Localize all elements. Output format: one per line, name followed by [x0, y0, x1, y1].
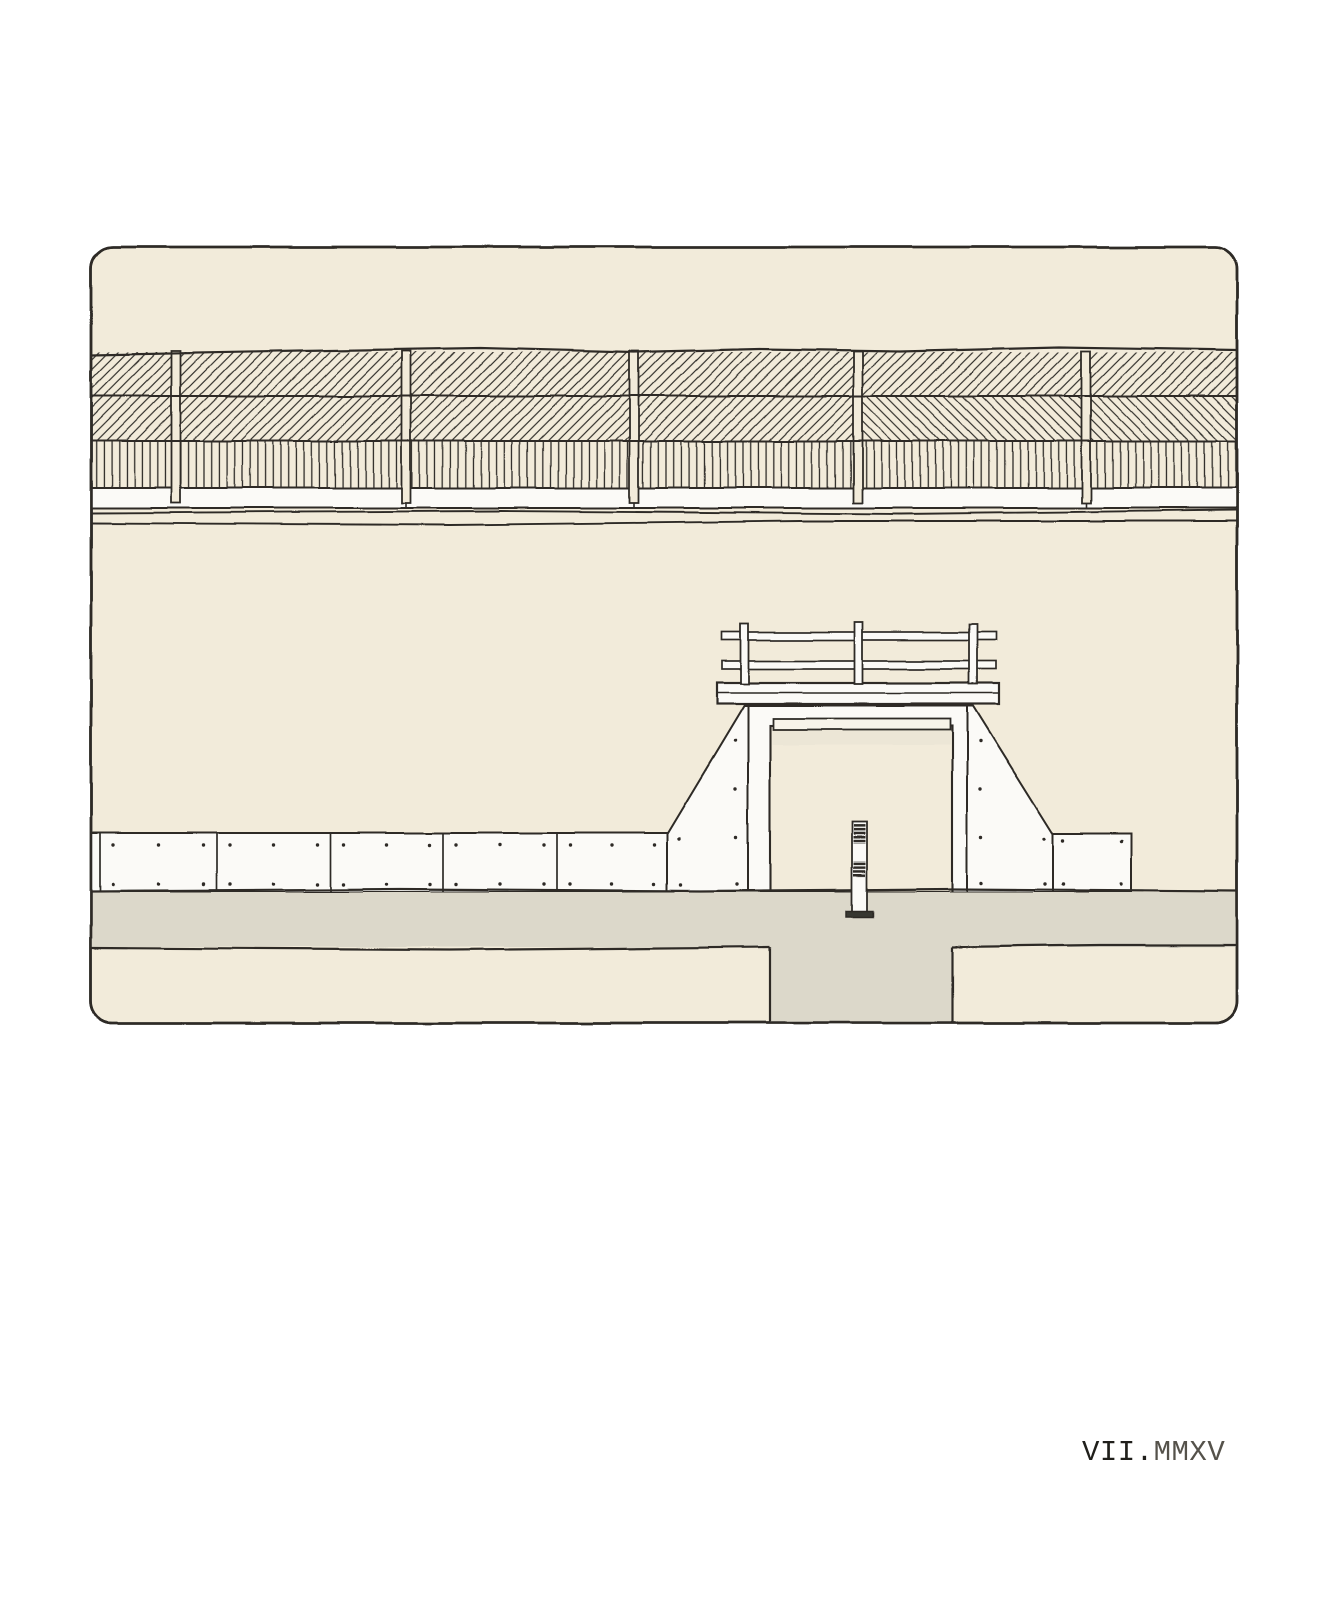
- bolt-dot: [1043, 882, 1046, 885]
- bolt-dot: [498, 843, 501, 846]
- bolt-dot: [652, 843, 655, 846]
- bolt-dot: [568, 882, 571, 885]
- bolt-dot: [568, 843, 571, 846]
- bolt-dot: [1061, 882, 1064, 885]
- bolt-dot: [542, 843, 545, 846]
- bolt-dot: [1042, 837, 1045, 840]
- bolt-dot: [679, 883, 682, 886]
- fence-palings-band: [91, 441, 1237, 488]
- bolt-dot: [272, 843, 275, 846]
- bollard-base: [846, 911, 873, 917]
- bolt-dot: [610, 843, 613, 846]
- bolt-dot: [157, 882, 160, 885]
- bolt-dot: [202, 843, 205, 846]
- illustration-page: VII.MMXV: [0, 0, 1334, 1600]
- bolt-dot: [341, 843, 344, 846]
- underpass-sketch: [0, 0, 1334, 1600]
- bolt-dot: [1119, 882, 1122, 885]
- retaining-wall-left: [91, 833, 667, 892]
- bollard-stripe-top: [854, 824, 866, 844]
- bolt-dot: [157, 843, 160, 846]
- bolt-dot: [734, 835, 737, 838]
- bolt-dot: [979, 835, 982, 838]
- bolt-dot: [315, 882, 318, 885]
- bolt-dot: [978, 787, 981, 790]
- fence-lower-hatch-band-right: [858, 396, 1237, 441]
- bolt-dot: [454, 882, 457, 885]
- bolt-dot: [652, 882, 655, 885]
- bolt-dot: [228, 882, 231, 885]
- opening-lintel: [773, 719, 950, 730]
- bolt-dot: [111, 843, 114, 846]
- date-year-roman: MMXV: [1154, 1436, 1226, 1469]
- railing-post-center: [855, 622, 863, 684]
- bolt-dot: [542, 882, 545, 885]
- bolt-dot: [978, 739, 981, 742]
- bolt-dot: [454, 843, 457, 846]
- bolt-dot: [111, 882, 114, 885]
- bolt-dot: [428, 843, 431, 846]
- bolt-dot: [979, 881, 982, 884]
- bolt-dot: [1119, 840, 1122, 843]
- underpass-path: [770, 947, 952, 1023]
- bolt-dot: [610, 882, 613, 885]
- fence-base-ledge: [91, 488, 1237, 508]
- sidewalk-band: [91, 892, 1237, 947]
- bolt-dot: [272, 882, 275, 885]
- bolt-dot: [735, 882, 738, 885]
- fence-lower-hatch-band-left: [91, 396, 858, 441]
- bolt-dot: [385, 882, 388, 885]
- bolt-dot: [1061, 839, 1064, 842]
- bolt-dot: [428, 882, 431, 885]
- railing-post-left: [741, 624, 749, 684]
- date-month-roman: VII.: [1082, 1436, 1154, 1469]
- opening-shadow: [772, 731, 950, 745]
- bolt-dot: [202, 882, 205, 885]
- bolt-dot: [733, 739, 736, 742]
- bolt-dot: [677, 837, 680, 840]
- date-caption: VII.MMXV: [1082, 1436, 1225, 1469]
- bolt-dot: [498, 882, 501, 885]
- bolt-dot: [228, 843, 231, 846]
- bolt-dot: [733, 787, 736, 790]
- railing-post-right: [969, 624, 977, 684]
- fence: [91, 347, 1237, 508]
- fence-upper-hatch-band: [91, 352, 1237, 396]
- bolt-dot: [341, 882, 344, 885]
- bolt-dot: [315, 843, 318, 846]
- bollard-stripe-mid: [854, 861, 866, 877]
- bolt-dot: [385, 843, 388, 846]
- wall-panel-right: [1053, 834, 1131, 892]
